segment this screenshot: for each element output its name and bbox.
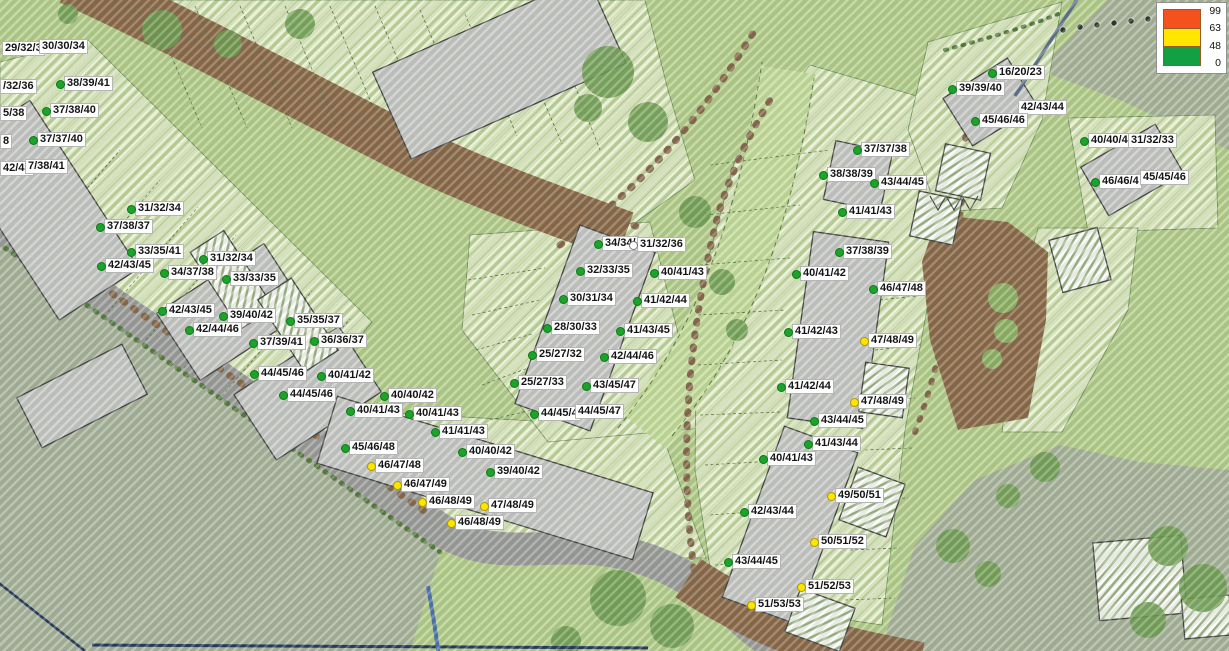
receiver-label[interactable]: 33/33/35 (230, 268, 279, 286)
receiver-label[interactable]: 37/38/39 (843, 241, 892, 259)
receiver-label[interactable]: 37/39/41 (257, 332, 306, 350)
receiver-label[interactable]: 40/41/43 (658, 262, 707, 280)
receiver-marker-icon (759, 455, 768, 464)
receiver-values: 46/47/49 (401, 477, 450, 492)
receiver-marker-icon (158, 307, 167, 316)
receiver-marker-icon (810, 417, 819, 426)
receiver-values: /32/36 (0, 79, 37, 94)
receiver-label[interactable]: 42/43/45 (166, 300, 215, 318)
receiver-values: 41/43/44 (812, 436, 861, 451)
receiver-values: 38/38/39 (827, 167, 876, 182)
receiver-label[interactable]: 44/45/46 (258, 363, 307, 381)
receiver-marker-icon (29, 136, 38, 145)
receiver-marker-icon (850, 398, 859, 407)
receiver-layer: 29/32/3 30/30/34 /32/36 5/38 8 42/43 7/3… (0, 0, 1229, 651)
receiver-label[interactable]: 45/45/46 (1140, 167, 1189, 185)
receiver-values: 31/32/33 (1128, 133, 1177, 148)
legend-color-scale (1163, 9, 1201, 66)
receiver-marker-icon (600, 353, 609, 362)
receiver-values: 42/43/45 (105, 258, 154, 273)
receiver-marker-icon (1080, 137, 1089, 146)
receiver-values: 44/45/46 (258, 366, 307, 381)
receiver-label[interactable]: 46/48/49 (455, 512, 504, 530)
receiver-values: 42/43/44 (748, 504, 797, 519)
receiver-label[interactable]: 37/37/38 (861, 139, 910, 157)
receiver-marker-icon (219, 312, 228, 321)
receiver-marker-icon (804, 440, 813, 449)
receiver-label[interactable]: 37/38/40 (50, 100, 99, 118)
receiver-label[interactable]: 37/38/37 (104, 216, 153, 234)
receiver-label[interactable]: 38/39/41 (64, 73, 113, 91)
receiver-values: 41/42/44 (785, 379, 834, 394)
receiver-marker-icon (870, 179, 879, 188)
receiver-label[interactable]: 41/43/45 (624, 320, 673, 338)
receiver-values: 44/45/46 (287, 387, 336, 402)
receiver-marker-icon (827, 492, 836, 501)
receiver-marker-icon (42, 107, 51, 116)
receiver-values: 40/41/43 (658, 265, 707, 280)
legend: 9963480 (1156, 2, 1227, 74)
receiver-marker-icon (948, 85, 957, 94)
receiver-label[interactable]: 42/43/45 (105, 255, 154, 273)
receiver-label[interactable]: 31/32/36 (637, 234, 686, 252)
receiver-values: 25/27/33 (518, 375, 567, 390)
receiver-marker-icon (650, 269, 659, 278)
receiver-marker-icon (777, 383, 786, 392)
receiver-marker-icon (249, 339, 258, 348)
receiver-marker-icon (510, 379, 519, 388)
receiver-marker-icon (971, 117, 980, 126)
receiver-values: 40/41/42 (325, 368, 374, 383)
receiver-label[interactable]: 44/45/47 (575, 401, 624, 419)
receiver-values: 41/43/45 (624, 323, 673, 338)
receiver-values: 30/30/34 (39, 39, 88, 54)
receiver-label[interactable]: 30/30/34 (39, 36, 88, 54)
receiver-marker-icon (56, 80, 65, 89)
receiver-values: 43/44/45 (878, 175, 927, 190)
receiver-values: 46/46/4 (1099, 174, 1142, 189)
receiver-marker-icon (594, 240, 603, 249)
receiver-values: 41/42/44 (641, 293, 690, 308)
receiver-values: 34/37/38 (168, 265, 217, 280)
receiver-marker-icon (286, 317, 295, 326)
receiver-values: 31/32/34 (135, 201, 184, 216)
receiver-label[interactable]: 42/44/46 (608, 346, 657, 364)
receiver-values: 51/52/53 (805, 579, 854, 594)
receiver-marker-icon (747, 601, 756, 610)
receiver-label[interactable]: 5/38 (0, 103, 27, 121)
receiver-label[interactable]: 39/40/42 (494, 461, 543, 479)
receiver-label[interactable]: 40/40/42 (466, 441, 515, 459)
receiver-values: 49/50/51 (835, 488, 884, 503)
receiver-label[interactable]: 43/45/47 (590, 375, 639, 393)
receiver-marker-icon (629, 241, 638, 250)
receiver-marker-icon (341, 444, 350, 453)
receiver-label[interactable]: 41/42/44 (785, 376, 834, 394)
receiver-marker-icon (310, 337, 319, 346)
receiver-marker-icon (185, 326, 194, 335)
receiver-label[interactable]: 41/41/43 (439, 421, 488, 439)
receiver-label[interactable]: 8 (0, 131, 12, 149)
receiver-values: 45/45/46 (1140, 170, 1189, 185)
receiver-label[interactable]: 41/42/44 (641, 290, 690, 308)
receiver-marker-icon (160, 269, 169, 278)
receiver-marker-icon (724, 558, 733, 567)
receiver-values: 37/37/40 (37, 132, 86, 147)
receiver-label[interactable]: 31/32/33 (1128, 130, 1177, 148)
receiver-label[interactable]: 40/40/4 (1088, 130, 1131, 148)
receiver-marker-icon (819, 171, 828, 180)
receiver-values: 37/39/41 (257, 335, 306, 350)
receiver-values: 37/38/40 (50, 103, 99, 118)
receiver-marker-icon (835, 248, 844, 257)
receiver-values: 43/45/47 (590, 378, 639, 393)
receiver-values: 39/39/40 (956, 81, 1005, 96)
receiver-label[interactable]: 46/47/49 (401, 474, 450, 492)
receiver-marker-icon (528, 351, 537, 360)
receiver-marker-icon (447, 519, 456, 528)
receiver-label[interactable]: 46/47/48 (877, 278, 926, 296)
receiver-values: 36/36/37 (318, 333, 367, 348)
receiver-marker-icon (346, 407, 355, 416)
receiver-marker-icon (405, 410, 414, 419)
receiver-values: 33/33/35 (230, 271, 279, 286)
receiver-label[interactable]: 7/38/41 (25, 156, 68, 174)
receiver-label[interactable]: 45/46/46 (979, 110, 1028, 128)
receiver-values: 40/41/43 (413, 406, 462, 421)
receiver-values: 37/38/39 (843, 244, 892, 259)
receiver-marker-icon (127, 248, 136, 257)
receiver-label[interactable]: 47/48/49 (858, 391, 907, 409)
receiver-label[interactable]: 38/38/39 (827, 164, 876, 182)
receiver-label[interactable]: 40/41/43 (767, 448, 816, 466)
receiver-label[interactable]: 37/37/40 (37, 129, 86, 147)
receiver-values: 40/40/4 (1088, 133, 1131, 148)
receiver-values: 35/35/37 (294, 313, 343, 328)
receiver-label[interactable]: 30/31/34 (567, 288, 616, 306)
receiver-label[interactable]: 36/36/37 (318, 330, 367, 348)
receiver-marker-icon (458, 448, 467, 457)
receiver-values: 32/33/35 (584, 263, 633, 278)
receiver-marker-icon (317, 372, 326, 381)
receiver-label[interactable]: 39/39/40 (956, 78, 1005, 96)
receiver-marker-icon (418, 498, 427, 507)
receiver-label[interactable]: 25/27/33 (518, 372, 567, 390)
receiver-marker-icon (279, 391, 288, 400)
receiver-marker-icon (431, 428, 440, 437)
receiver-values: 43/44/45 (732, 554, 781, 569)
receiver-values: 25/27/32 (536, 347, 585, 362)
receiver-values: 8 (0, 134, 12, 149)
receiver-values: 40/41/43 (767, 451, 816, 466)
receiver-label[interactable]: 46/48/49 (426, 491, 475, 509)
receiver-label[interactable]: 51/52/53 (805, 576, 854, 594)
receiver-marker-icon (559, 295, 568, 304)
receiver-values: 28/30/33 (551, 320, 600, 335)
receiver-marker-icon (853, 146, 862, 155)
site-plan-map[interactable]: 29/32/3 30/30/34 /32/36 5/38 8 42/43 7/3… (0, 0, 1229, 651)
receiver-marker-icon (250, 370, 259, 379)
receiver-values: 31/32/36 (637, 237, 686, 252)
receiver-marker-icon (860, 337, 869, 346)
receiver-marker-icon (633, 297, 642, 306)
receiver-values: 41/42/43 (792, 324, 841, 339)
receiver-marker-icon (740, 508, 749, 517)
receiver-values: 37/37/38 (861, 142, 910, 157)
receiver-label[interactable]: 43/44/45 (818, 410, 867, 428)
receiver-label[interactable]: 31/32/34 (135, 198, 184, 216)
receiver-values: 37/38/37 (104, 219, 153, 234)
receiver-marker-icon (792, 270, 801, 279)
receiver-values: 45/46/48 (349, 440, 398, 455)
receiver-marker-icon (582, 382, 591, 391)
receiver-label[interactable]: 44/45/46 (287, 384, 336, 402)
receiver-values: 42/43/45 (166, 303, 215, 318)
receiver-label[interactable]: 40/41/43 (413, 403, 462, 421)
receiver-values: 42/44/46 (193, 322, 242, 337)
receiver-label[interactable]: 42/44/46 (193, 319, 242, 337)
receiver-marker-icon (393, 481, 402, 490)
receiver-label[interactable]: 43/44/45 (732, 551, 781, 569)
receiver-values: 40/41/42 (800, 266, 849, 281)
receiver-values: 46/47/48 (877, 281, 926, 296)
receiver-values: 46/47/48 (375, 458, 424, 473)
receiver-marker-icon (616, 327, 625, 336)
receiver-values: 47/48/49 (868, 333, 917, 348)
receiver-marker-icon (988, 69, 997, 78)
receiver-label[interactable]: 40/41/42 (800, 263, 849, 281)
receiver-values: 40/40/42 (466, 444, 515, 459)
receiver-marker-icon (199, 255, 208, 264)
receiver-marker-icon (576, 267, 585, 276)
receiver-label[interactable]: 41/41/43 (846, 201, 895, 219)
receiver-marker-icon (486, 468, 495, 477)
receiver-values: 41/41/43 (439, 424, 488, 439)
receiver-label[interactable]: 41/43/44 (812, 433, 861, 451)
receiver-marker-icon (1091, 178, 1100, 187)
legend-values: 9963480 (1206, 6, 1221, 68)
receiver-values: 50/51/52 (818, 534, 867, 549)
receiver-label[interactable]: 42/43/44 (748, 501, 797, 519)
receiver-marker-icon (367, 462, 376, 471)
receiver-values: 38/39/41 (64, 76, 113, 91)
receiver-label[interactable]: 40/41/43 (354, 400, 403, 418)
receiver-label[interactable]: 47/48/49 (488, 495, 537, 513)
receiver-label[interactable]: 41/42/43 (792, 321, 841, 339)
receiver-values: 30/31/34 (567, 291, 616, 306)
receiver-marker-icon (380, 392, 389, 401)
receiver-label[interactable]: 43/44/45 (878, 172, 927, 190)
receiver-label[interactable]: 35/35/37 (294, 310, 343, 328)
receiver-label[interactable]: 28/30/33 (551, 317, 600, 335)
receiver-label[interactable]: 34/37/38 (168, 262, 217, 280)
receiver-values: 47/48/49 (488, 498, 537, 513)
receiver-label[interactable]: 51/53/53 (755, 594, 804, 612)
receiver-marker-icon (97, 262, 106, 271)
receiver-label[interactable]: 49/50/51 (835, 485, 884, 503)
receiver-label[interactable]: 25/27/32 (536, 344, 585, 362)
receiver-label[interactable]: 40/41/42 (325, 365, 374, 383)
receiver-marker-icon (480, 502, 489, 511)
receiver-marker-icon (96, 223, 105, 232)
receiver-values: 41/41/43 (846, 204, 895, 219)
receiver-values: 43/44/45 (818, 413, 867, 428)
receiver-marker-icon (797, 583, 806, 592)
receiver-label[interactable]: /32/36 (0, 76, 37, 94)
receiver-values: 42/44/46 (608, 349, 657, 364)
receiver-values: 7/38/41 (25, 159, 68, 174)
receiver-marker-icon (543, 324, 552, 333)
receiver-label[interactable]: 47/48/49 (868, 330, 917, 348)
receiver-label[interactable]: 45/46/48 (349, 437, 398, 455)
receiver-label[interactable]: 46/47/48 (375, 455, 424, 473)
receiver-marker-icon (838, 208, 847, 217)
receiver-values: 46/48/49 (426, 494, 475, 509)
receiver-values: 47/48/49 (858, 394, 907, 409)
receiver-marker-icon (869, 285, 878, 294)
receiver-values: 44/45/47 (575, 404, 624, 419)
receiver-label[interactable]: 46/46/4 (1099, 171, 1142, 189)
receiver-values: 39/40/42 (494, 464, 543, 479)
receiver-values: 51/53/53 (755, 597, 804, 612)
receiver-marker-icon (127, 205, 136, 214)
receiver-values: 45/46/46 (979, 113, 1028, 128)
receiver-marker-icon (784, 328, 793, 337)
receiver-values: 40/41/43 (354, 403, 403, 418)
receiver-values: 46/48/49 (455, 515, 504, 530)
receiver-marker-icon (530, 410, 539, 419)
receiver-label[interactable]: 32/33/35 (584, 260, 633, 278)
receiver-marker-icon (810, 538, 819, 547)
receiver-marker-icon (222, 275, 231, 284)
receiver-values: 5/38 (0, 106, 27, 121)
receiver-label[interactable]: 50/51/52 (818, 531, 867, 549)
